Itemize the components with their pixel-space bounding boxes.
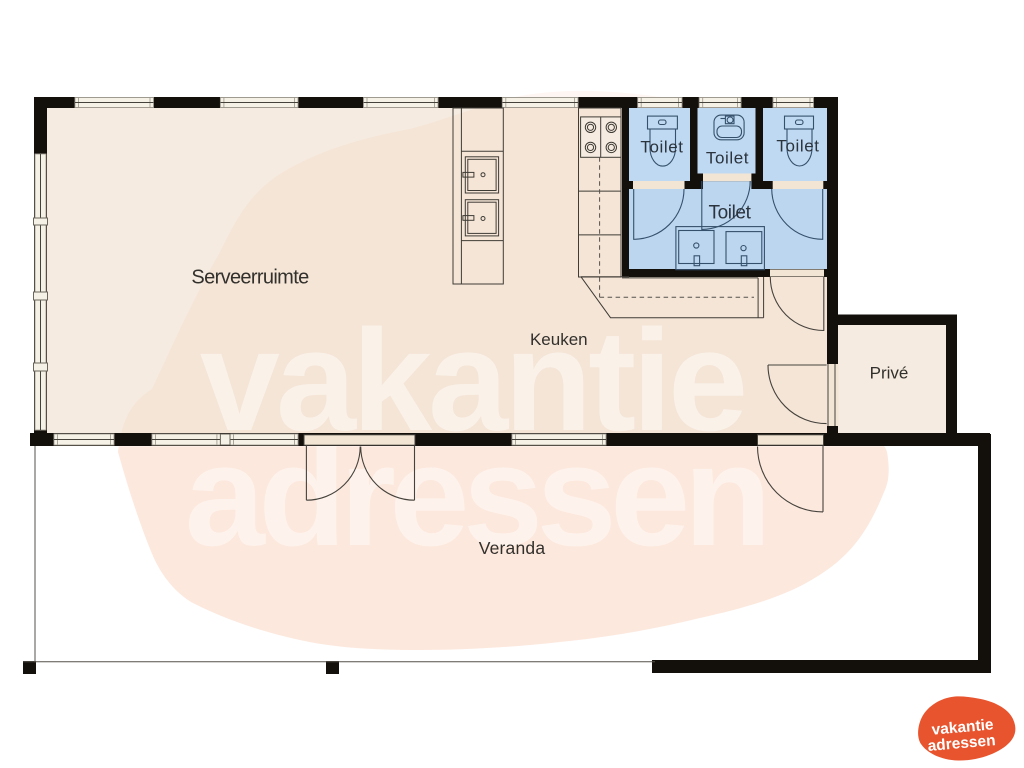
- svg-text:Keuken: Keuken: [530, 330, 588, 349]
- svg-text:Toilet: Toilet: [709, 203, 752, 224]
- svg-text:Privé: Privé: [870, 364, 909, 383]
- svg-text:Toilet: Toilet: [776, 137, 819, 156]
- svg-text:Veranda: Veranda: [479, 538, 546, 558]
- svg-text:Toilet: Toilet: [640, 138, 683, 157]
- svg-text:Toilet: Toilet: [706, 149, 749, 168]
- svg-text:Serveerruimte: Serveerruimte: [191, 266, 309, 288]
